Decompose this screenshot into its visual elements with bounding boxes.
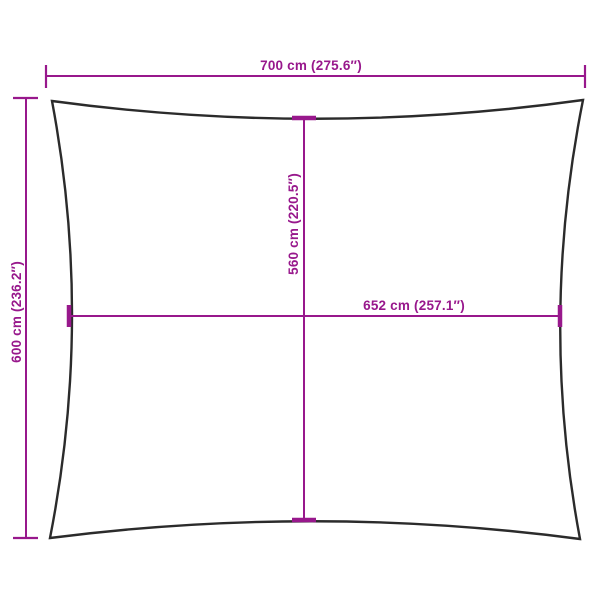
dim-top-width: 700 cm (275.6″) [46,58,585,88]
dim-inner-height-label: 560 cm (220.5″) [286,173,301,275]
dim-inner-height: 560 cm (220.5″) [286,118,316,520]
sail-outline [50,100,583,539]
dimension-diagram-canvas: 700 cm (275.6″) 600 cm (236.2″) 560 cm (… [0,0,600,600]
dim-left-height: 600 cm (236.2″) [9,98,38,538]
dimension-diagram: 700 cm (275.6″) 600 cm (236.2″) 560 cm (… [0,0,600,600]
dim-inner-width: 652 cm (257.1″) [69,298,560,327]
dim-top-width-label: 700 cm (275.6″) [260,58,362,73]
dim-inner-width-label: 652 cm (257.1″) [363,298,465,313]
dim-left-height-label: 600 cm (236.2″) [9,261,24,363]
